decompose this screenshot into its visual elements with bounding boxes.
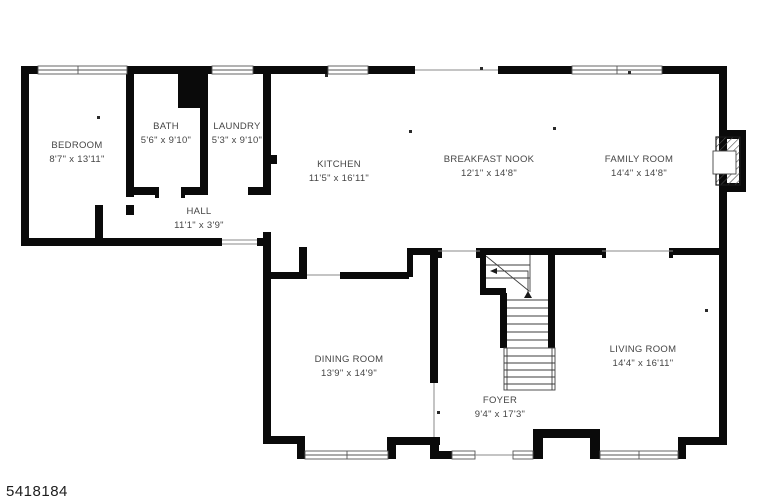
- watermark-id: 5418184: [6, 483, 68, 500]
- room-name: KITCHEN: [309, 158, 369, 172]
- room-dims: 11'1" x 3'9": [174, 219, 224, 233]
- floor-plan: BEDROOM 8'7" x 13'11" BATH 5'6" x 9'10" …: [0, 0, 768, 502]
- room-label-breakfast-nook: BREAKFAST NOOK 12'1" x 14'8": [444, 153, 535, 182]
- staircase: [486, 255, 555, 390]
- room-name: FOYER: [475, 394, 525, 408]
- room-label-hall: HALL 11'1" x 3'9": [174, 205, 224, 234]
- room-name: DINING ROOM: [315, 353, 384, 367]
- floor-plan-drawing: [0, 0, 768, 502]
- room-dims: 14'4" x 16'11": [610, 357, 677, 371]
- room-label-living-room: LIVING ROOM 14'4" x 16'11": [610, 343, 677, 372]
- fireplace-firebox: [713, 151, 736, 174]
- room-dims: 8'7" x 13'11": [49, 153, 104, 167]
- room-name: BREAKFAST NOOK: [444, 153, 535, 167]
- room-dims: 12'1" x 14'8": [444, 167, 535, 181]
- room-dims: 14'4" x 14'8": [605, 167, 673, 181]
- room-name: BATH: [141, 120, 191, 134]
- room-name: BEDROOM: [49, 139, 104, 153]
- room-label-dining-room: DINING ROOM 13'9" x 14'9": [315, 353, 384, 382]
- room-label-kitchen: KITCHEN 11'5" x 16'11": [309, 158, 369, 187]
- opening-lines: [222, 70, 673, 455]
- room-dims: 9'4" x 17'3": [475, 408, 525, 422]
- room-dims: 5'6" x 9'10": [141, 134, 191, 148]
- room-label-bedroom: BEDROOM 8'7" x 13'11": [49, 139, 104, 168]
- room-dims: 5'3" x 9'10": [212, 134, 262, 148]
- fireplace: [713, 130, 746, 192]
- room-name: HALL: [174, 205, 224, 219]
- room-label-laundry: LAUNDRY 5'3" x 9'10": [212, 120, 262, 149]
- room-name: LIVING ROOM: [610, 343, 677, 357]
- room-label-foyer: FOYER 9'4" x 17'3": [475, 394, 525, 423]
- room-label-family-room: FAMILY ROOM 14'4" x 14'8": [605, 153, 673, 182]
- room-name: FAMILY ROOM: [605, 153, 673, 167]
- room-name: LAUNDRY: [212, 120, 262, 134]
- room-label-bath: BATH 5'6" x 9'10": [141, 120, 191, 149]
- room-dims: 11'5" x 16'11": [309, 172, 369, 186]
- room-dims: 13'9" x 14'9": [315, 367, 384, 381]
